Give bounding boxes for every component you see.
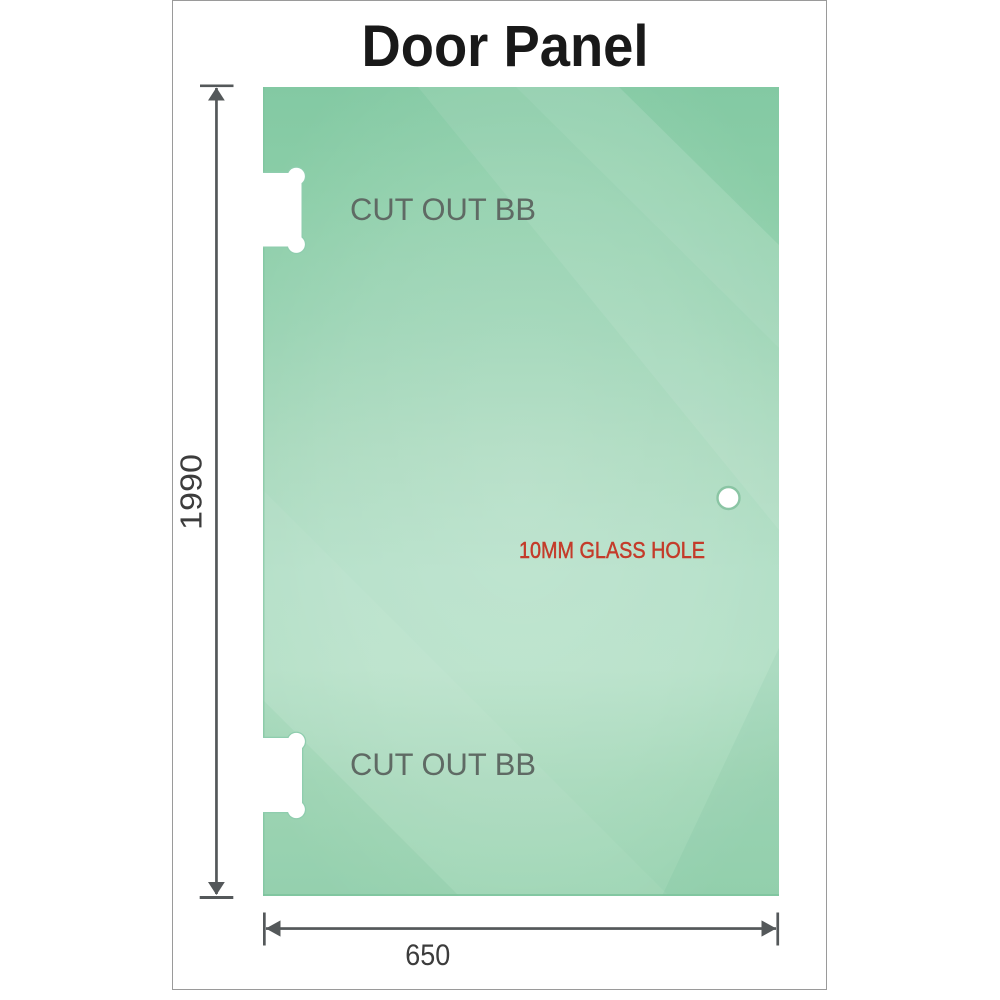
svg-text:CUT OUT BB: CUT OUT BB — [350, 191, 536, 227]
svg-text:CUT OUT BB: CUT OUT BB — [350, 746, 536, 782]
svg-text:650: 650 — [405, 939, 450, 972]
svg-text:10MM GLASS HOLE: 10MM GLASS HOLE — [519, 537, 705, 563]
svg-text:1990: 1990 — [174, 454, 209, 530]
svg-text:Door Panel: Door Panel — [362, 14, 649, 79]
